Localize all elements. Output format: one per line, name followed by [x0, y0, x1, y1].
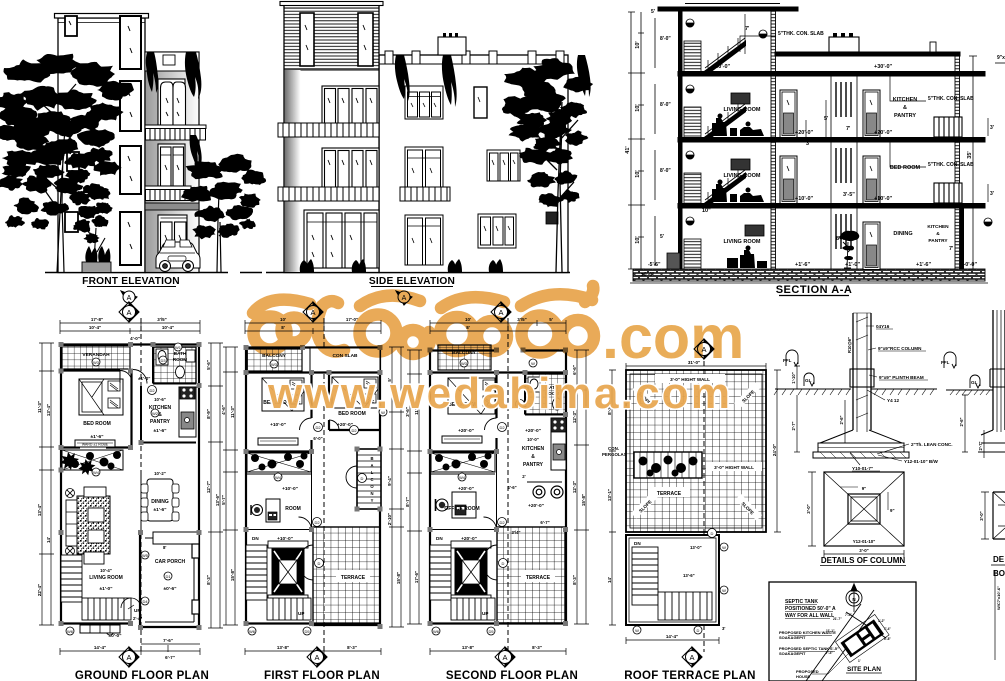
svg-text:13'-1": 13'-1" [607, 489, 612, 501]
svg-text:SIDE ELEVATION: SIDE ELEVATION [369, 276, 455, 287]
svg-text:A: A [502, 653, 507, 662]
svg-text:8'-9": 8'-9" [206, 409, 211, 419]
svg-text:DN: DN [634, 541, 641, 546]
svg-text:9": 9" [890, 508, 895, 513]
svg-text:.com: .com [602, 303, 744, 371]
svg-text:+20'-0": +20'-0" [874, 130, 893, 136]
svg-text:C: C [370, 477, 373, 482]
svg-text:B: B [370, 456, 373, 461]
svg-text:3'-5": 3'-5" [843, 192, 855, 198]
svg-text:8'-0": 8'-0" [660, 102, 671, 108]
svg-text:LIVING ROOM: LIVING ROOM [724, 173, 761, 179]
svg-text:9"x9": 9"x9" [997, 55, 1005, 61]
svg-text:GROUND FLOOR PLAN: GROUND FLOOR PLAN [75, 670, 209, 681]
svg-text:GL: GL [805, 378, 812, 383]
svg-text:5': 5' [651, 9, 655, 15]
svg-text:TERRACE: TERRACE [526, 575, 551, 581]
svg-text:10': 10' [635, 41, 641, 49]
svg-text:FFL: FFL [783, 358, 792, 363]
svg-text:SEPTIC TANK: SEPTIC TANK [785, 599, 818, 605]
svg-text:FRONT ELEVATION: FRONT ELEVATION [82, 276, 180, 287]
svg-text:+10'-0": +10'-0" [795, 196, 814, 202]
svg-text:A: A [498, 308, 503, 317]
svg-text:WAY FOR ALL WALL: WAY FOR ALL WALL [785, 613, 834, 619]
svg-text:14': 14' [46, 537, 51, 543]
svg-text:3'-0": 3'-0" [979, 511, 984, 520]
svg-text:3'-0": 3'-0" [806, 504, 811, 513]
svg-text:9"x9"RCC COLUMN: 9"x9"RCC COLUMN [878, 346, 922, 351]
svg-text:12'-3": 12'-3" [572, 481, 577, 493]
svg-text:±1'-6": ±1'-6" [91, 434, 104, 440]
svg-text:SECTION A-A: SECTION A-A [776, 284, 853, 296]
svg-text:D2: D2 [499, 425, 505, 430]
svg-text:10': 10' [635, 104, 641, 112]
svg-text:5"THK. CON. SLAB: 5"THK. CON. SLAB [778, 31, 824, 37]
svg-text:D2: D2 [149, 388, 155, 393]
svg-text:8'-0": 8'-0" [660, 168, 671, 174]
svg-text:2'-7": 2'-7" [978, 441, 983, 450]
svg-text:8'-3": 8'-3" [347, 645, 357, 650]
svg-text:N: N [852, 597, 855, 602]
svg-text:W3: W3 [461, 361, 468, 366]
svg-text:10': 10' [635, 170, 641, 178]
svg-text:PANTRY: PANTRY [150, 419, 171, 425]
svg-text:D4: D4 [142, 599, 148, 604]
svg-text:2"Th. LEAN CONC.: 2"Th. LEAN CONC. [911, 442, 952, 447]
svg-text:POSITIONED 50'-0" A: POSITIONED 50'-0" A [785, 606, 836, 612]
svg-text:7'-4": 7'-4" [884, 627, 891, 631]
svg-text:±0'-0": ±0'-0" [641, 272, 655, 278]
svg-text:PANTRY: PANTRY [928, 238, 948, 244]
svg-text:35': 35' [967, 151, 973, 159]
svg-text:CON.: CON. [608, 446, 619, 451]
svg-text:W: W [531, 361, 535, 366]
svg-text:R10@6": R10@6" [847, 337, 852, 353]
svg-text:L: L [371, 470, 374, 475]
svg-text:1'-10": 1'-10" [791, 372, 796, 383]
svg-text:8'-6": 8'-6" [836, 236, 848, 242]
svg-text:D2: D2 [499, 520, 505, 525]
svg-text:LIVING ROOM: LIVING ROOM [724, 107, 761, 113]
svg-text:A: A [127, 295, 132, 302]
svg-text:D: D [711, 531, 714, 536]
svg-text:5'-7": 5'-7" [221, 495, 226, 505]
svg-text:9"x9" PLINTH BEAM: 9"x9" PLINTH BEAM [879, 375, 924, 380]
svg-text:D: D [361, 476, 364, 481]
svg-text:2'-6": 2'-6" [959, 417, 964, 426]
svg-text:+10'-0": +10'-0" [282, 486, 298, 492]
svg-text:&: & [531, 454, 535, 460]
svg-text:21'-7": 21'-7" [833, 617, 842, 621]
svg-text:15'-8": 15'-8" [581, 494, 586, 506]
svg-text:7'-5": 7'-5" [845, 613, 852, 617]
svg-text:KITCHEN: KITCHEN [927, 224, 949, 230]
svg-text:13'-8": 13'-8" [277, 645, 289, 650]
svg-text:A: A [370, 463, 373, 468]
svg-text:+10'-0": +10'-0" [874, 196, 893, 202]
svg-text:VERANDAH: VERANDAH [82, 352, 110, 358]
svg-text:W/C7'x10'-6": W/C7'x10'-6" [996, 586, 1001, 610]
svg-text:PERGOLAS: PERGOLAS [602, 452, 627, 457]
svg-text:3'/5": 3'/5" [157, 317, 166, 322]
svg-text:6": 6" [712, 204, 718, 210]
svg-text:DINING: DINING [893, 231, 912, 237]
svg-text:D2: D2 [314, 520, 320, 525]
svg-text:BATH: BATH [174, 351, 187, 356]
svg-text:04Y16: 04Y16 [876, 324, 890, 329]
svg-text:WARD ±1 ROBE: WARD ±1 ROBE [82, 443, 109, 447]
svg-text:D2: D2 [315, 425, 321, 430]
svg-text:SECOND FLOOR PLAN: SECOND FLOOR PLAN [446, 670, 578, 681]
svg-text:-5'-6": -5'-6" [648, 262, 661, 268]
svg-text:14'-4": 14'-4" [666, 634, 678, 639]
svg-text:D2: D2 [351, 428, 357, 433]
svg-text:11'-3": 11'-3" [230, 406, 235, 418]
svg-text:A: A [314, 653, 319, 662]
svg-text:DINING: DINING [151, 499, 169, 505]
svg-text:FFL: FFL [941, 360, 950, 365]
svg-text:14'-4": 14'-4" [94, 645, 106, 650]
svg-text:BED ROOM: BED ROOM [890, 165, 921, 171]
svg-text:7': 7' [745, 26, 750, 32]
svg-text:8': 8' [163, 545, 166, 550]
svg-text:3': 3' [990, 191, 994, 197]
svg-text:W5: W5 [142, 553, 149, 558]
svg-text:SITE PLAN: SITE PLAN [847, 666, 881, 673]
svg-text:17'-8": 17'-8" [91, 317, 103, 322]
svg-text:3'-0" HIGHT WALL: 3'-0" HIGHT WALL [714, 465, 754, 470]
svg-text:KITCHEN: KITCHEN [522, 446, 545, 452]
svg-text:7'-6": 7'-6" [163, 638, 173, 643]
svg-text:ROOF TERRACE PLAN: ROOF TERRACE PLAN [624, 670, 756, 681]
svg-text:11'-3": 11'-3" [37, 401, 42, 413]
svg-text:9'-4": 9'-4" [387, 476, 392, 486]
svg-text:&: & [936, 231, 940, 237]
svg-text:8'-0": 8'-0" [660, 36, 671, 42]
svg-text:+0'-0": +0'-0" [962, 262, 977, 268]
svg-text:W: W [635, 628, 639, 633]
svg-text:6'-7": 6'-7" [540, 520, 549, 525]
svg-text:D: D [697, 628, 700, 633]
svg-text:UP: UP [482, 611, 488, 616]
svg-text:A: A [689, 653, 694, 662]
svg-text:10": 10" [702, 208, 711, 214]
svg-text:DETAILS OF COLUMN: DETAILS OF COLUMN [821, 556, 906, 565]
svg-text:±0'-6": ±0'-6" [164, 586, 177, 592]
svg-text:DN: DN [252, 536, 259, 541]
svg-text:41': 41' [625, 146, 631, 154]
svg-text:LIVING ROOM: LIVING ROOM [89, 575, 123, 581]
svg-text:13'-6": 13'-6" [683, 573, 695, 578]
svg-text:+1'-0": +1'-0" [845, 262, 860, 268]
svg-text:3': 3' [806, 141, 811, 147]
svg-text:3': 3' [722, 626, 725, 631]
svg-text:PANTRY: PANTRY [523, 462, 544, 468]
svg-text:+20'-0": +20'-0" [458, 428, 474, 434]
svg-text:PANTRY: PANTRY [894, 113, 916, 119]
svg-text:±1'-0": ±1'-0" [138, 376, 150, 381]
svg-text:5': 5' [824, 116, 829, 122]
svg-text:7': 7' [949, 246, 954, 252]
svg-text:8'-3": 8'-3" [572, 575, 577, 585]
svg-text:1'-2": 1'-2" [878, 619, 885, 623]
svg-text:D5: D5 [304, 629, 310, 634]
svg-text:10'-0": 10'-0" [527, 437, 539, 442]
svg-text:10': 10' [635, 236, 641, 244]
svg-text:+10'-0": +10'-0" [270, 422, 286, 428]
svg-text:3': 3' [990, 125, 994, 131]
svg-text:8'-3": 8'-3" [532, 645, 542, 650]
svg-text:5"THK. CON. SLAB: 5"THK. CON. SLAB [928, 162, 974, 168]
svg-text:W: W [722, 545, 726, 550]
svg-text:4'-6": 4'-6" [221, 405, 226, 415]
svg-text:8'-7": 8'-7" [405, 497, 410, 507]
svg-text:Y4 12: Y4 12 [887, 398, 899, 403]
svg-text:10'-4": 10'-4" [89, 325, 101, 330]
svg-text:13'-0": 13'-0" [690, 545, 702, 550]
svg-text:2': 2' [522, 474, 525, 479]
svg-text:10'-4": 10'-4" [162, 325, 174, 330]
svg-text:10'-4": 10'-4" [100, 568, 112, 573]
svg-text:W4: W4 [93, 470, 100, 475]
svg-text:TERRACE: TERRACE [657, 491, 682, 497]
svg-text:13'-4": 13'-4" [37, 504, 42, 516]
svg-text:+1'-6": +1'-6" [916, 262, 931, 268]
svg-text:Y12-01-10": Y12-01-10" [853, 539, 876, 544]
svg-text:±1'-6": ±1'-6" [154, 507, 167, 513]
svg-text:8'-3": 8'-3" [206, 575, 211, 585]
svg-text:CAR PORCH: CAR PORCH [155, 559, 186, 565]
svg-text:D1: D1 [165, 574, 171, 579]
svg-text:GL: GL [971, 380, 978, 385]
svg-text:+20'-0": +20'-0" [525, 428, 541, 434]
svg-text:DN: DN [436, 536, 443, 541]
svg-text:13'-8": 13'-8" [462, 645, 474, 650]
svg-text:15'-8": 15'-8" [396, 572, 401, 584]
svg-text:A: A [126, 308, 131, 317]
svg-text:4'-6": 4'-6" [507, 485, 516, 490]
svg-text:D3: D3 [160, 358, 166, 363]
svg-text:+20'-0": +20'-0" [795, 130, 814, 136]
svg-text:6'-0": 6'-0" [313, 436, 322, 441]
svg-text:W6: W6 [433, 629, 440, 634]
svg-text:13'-4": 13'-4" [46, 404, 51, 416]
svg-text:+30'-0": +30'-0" [712, 64, 731, 70]
svg-text:A: A [126, 653, 131, 662]
svg-text:15'-8": 15'-8" [230, 569, 235, 581]
svg-text:12'-7": 12'-7" [206, 481, 211, 493]
svg-text:W: W [722, 588, 726, 593]
svg-text:2'-7": 2'-7" [791, 421, 796, 430]
svg-text:13'-6": 13'-6" [215, 494, 220, 506]
svg-text:22'-4": 22'-4" [37, 584, 42, 596]
svg-text:17'-6": 17'-6" [414, 571, 419, 583]
svg-text:&: & [903, 105, 907, 111]
svg-text:W3: W3 [271, 362, 278, 367]
svg-text:5"THK. CON. SLAB: 5"THK. CON. SLAB [928, 96, 974, 102]
svg-text:10'-2": 10'-2" [154, 471, 166, 476]
svg-text:+30'-0": +30'-0" [874, 64, 893, 70]
svg-text:Y12-01-10" B/W: Y12-01-10" B/W [904, 459, 939, 464]
svg-text:24'-0": 24'-0" [772, 444, 777, 456]
svg-text:N: N [370, 491, 373, 496]
svg-text:+20'-0": +20'-0" [528, 503, 544, 509]
svg-text:2'-10": 2'-10" [387, 513, 392, 525]
svg-text:ROOM: ROOM [285, 506, 301, 512]
svg-text:W4: W4 [275, 475, 282, 480]
svg-text:ROOM: ROOM [173, 357, 187, 362]
svg-text:W1: W1 [175, 345, 182, 350]
svg-text:14': 14' [607, 577, 612, 583]
svg-text:+1'-6": +1'-6" [795, 262, 810, 268]
svg-text:4'-0": 4'-0" [130, 336, 140, 341]
svg-text:±1'-0": ±1'-0" [100, 586, 113, 592]
svg-text:DE: DE [993, 555, 1005, 564]
svg-text:±1'-6": ±1'-6" [154, 428, 167, 434]
svg-text:Y: Y [371, 498, 374, 503]
svg-text:10'-6": 10'-6" [154, 397, 166, 402]
svg-text:2'-6": 2'-6" [839, 415, 844, 424]
svg-text:LIVING ROOM: LIVING ROOM [724, 239, 761, 245]
svg-text:9": 9" [862, 486, 867, 491]
svg-text:W3: W3 [93, 360, 100, 365]
svg-text:TERRACE: TERRACE [341, 575, 366, 581]
svg-text:W4: W4 [459, 475, 466, 480]
svg-text:3'-0": 3'-0" [859, 548, 868, 553]
svg-text:D: D [502, 561, 505, 566]
svg-text:OFFICE ROOM: OFFICE ROOM [444, 506, 479, 512]
svg-text:W6: W6 [249, 629, 256, 634]
svg-text:W2: W2 [152, 411, 159, 416]
svg-text:6'-8": 6'-8" [884, 637, 891, 641]
svg-text:Y10-01-7": Y10-01-7" [852, 466, 873, 471]
svg-text:HOUSE: HOUSE [796, 674, 811, 679]
svg-text:1': 1' [858, 659, 861, 663]
svg-text:W6: W6 [67, 629, 74, 634]
svg-text:+20'-0": +20'-0" [458, 486, 474, 492]
svg-text:7': 7' [846, 126, 851, 132]
svg-text:5'-6": 5'-6" [206, 360, 211, 370]
svg-text:5': 5' [660, 234, 664, 240]
svg-text:BED ROOM: BED ROOM [83, 421, 111, 427]
svg-text:FIRST FLOOR PLAN: FIRST FLOOR PLAN [264, 670, 380, 681]
svg-text:D: D [318, 561, 321, 566]
svg-text:UP: UP [298, 611, 304, 616]
svg-text:6'-7": 6'-7" [165, 655, 175, 660]
svg-text:D5: D5 [488, 629, 494, 634]
svg-text:KITCHEN: KITCHEN [893, 97, 917, 103]
